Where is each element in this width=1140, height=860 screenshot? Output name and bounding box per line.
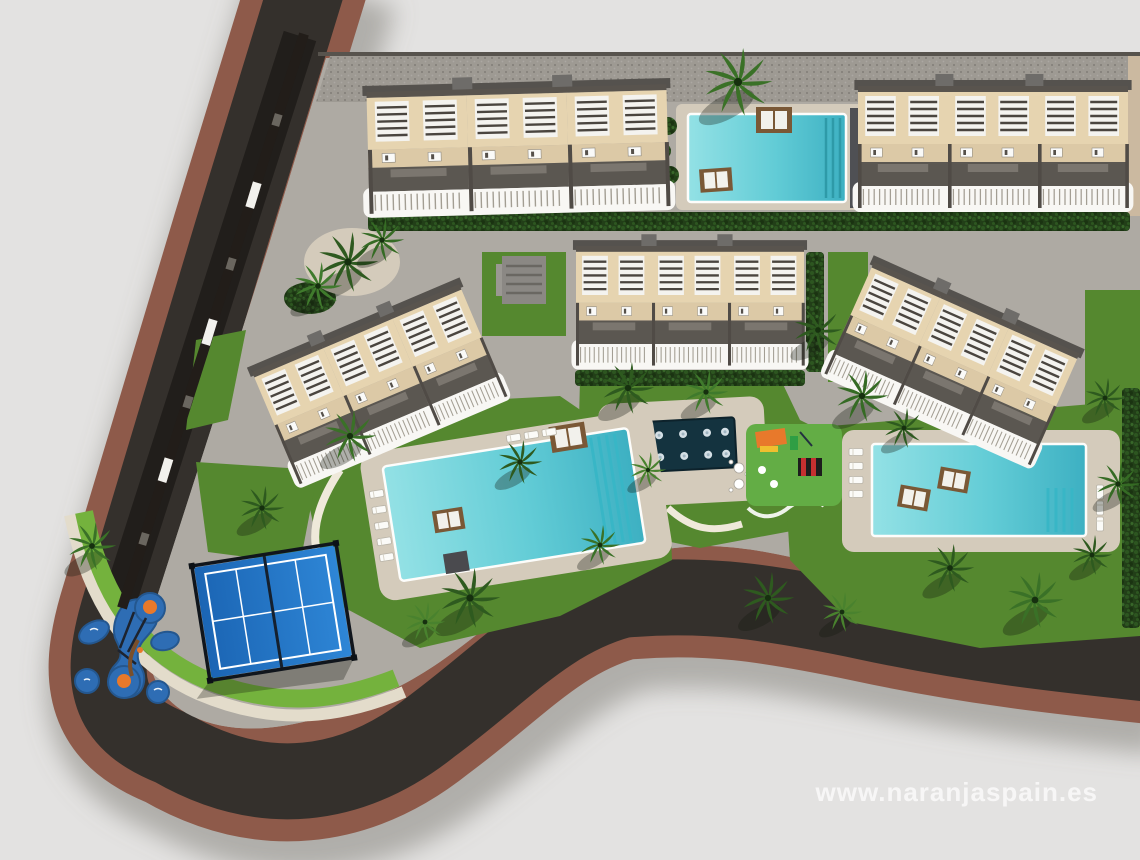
- spring-rider: [770, 480, 778, 488]
- hedge-mid-row: [575, 370, 805, 386]
- spring-rider: [758, 466, 766, 474]
- pool-equipment-box: [443, 551, 470, 575]
- building-north-east: [853, 74, 1134, 212]
- building-north-west: [360, 72, 676, 218]
- building-middle: [571, 234, 808, 369]
- slide: [790, 436, 798, 450]
- watermark-text: www.naranjaspain.es: [816, 777, 1098, 808]
- top-boundary-wall: [318, 52, 1140, 56]
- stair-block: [496, 256, 546, 304]
- daybed: [756, 107, 792, 133]
- play-disc: [117, 674, 131, 688]
- hedge-right-edge: [1122, 388, 1140, 628]
- aerial-render: www.naranjaspain.es: [0, 0, 1140, 860]
- rubber-mat: [147, 681, 169, 703]
- site-plan-drawing: [0, 0, 1140, 860]
- play-disc: [137, 647, 143, 653]
- rubber-mat: [75, 669, 99, 693]
- daybed: [548, 422, 588, 453]
- daybed: [699, 167, 733, 193]
- daybed-in-pool: [432, 507, 466, 534]
- seesaw-pad: [798, 458, 822, 476]
- play-disc: [143, 600, 157, 614]
- play-bar: [760, 446, 778, 452]
- central-playground: [746, 424, 842, 506]
- pool-north: [655, 104, 880, 210]
